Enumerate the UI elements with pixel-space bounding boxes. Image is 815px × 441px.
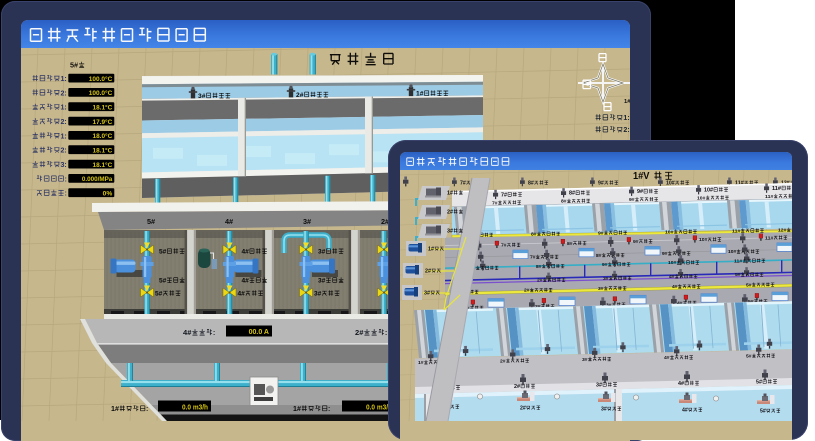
svg-text:5#: 5#	[760, 409, 766, 415]
svg-text:9#: 9#	[633, 239, 639, 245]
svg-text:7#: 7#	[492, 200, 498, 206]
svg-text:10#: 10#	[666, 181, 675, 187]
svg-text:3#: 3#	[601, 407, 607, 413]
svg-text:100.0°C: 100.0°C	[89, 75, 113, 83]
svg-text:3#: 3#	[596, 383, 602, 389]
svg-text:3#: 3#	[318, 278, 326, 285]
svg-text:2:: 2:	[61, 146, 67, 155]
svg-text:5#: 5#	[746, 354, 752, 360]
svg-text:4#: 4#	[678, 381, 684, 387]
svg-text:7#: 7#	[501, 192, 507, 198]
svg-text:100.0°C: 100.0°C	[89, 89, 113, 97]
svg-text:0%: 0%	[103, 190, 113, 197]
svg-text:9#: 9#	[662, 251, 668, 257]
svg-text:1#V: 1#V	[633, 171, 650, 182]
svg-text:2:: 2:	[623, 125, 629, 134]
svg-text:3#: 3#	[582, 357, 588, 363]
svg-text:9#: 9#	[598, 181, 604, 187]
svg-text:8#: 8#	[536, 264, 542, 270]
svg-text:1#: 1#	[447, 191, 453, 197]
svg-text:8#: 8#	[596, 253, 602, 259]
svg-text:10#: 10#	[697, 195, 706, 201]
svg-text:10#: 10#	[728, 249, 737, 255]
svg-text:3#: 3#	[424, 291, 430, 297]
svg-text:3#: 3#	[303, 218, 311, 226]
svg-text:0.000/MPa: 0.000/MPa	[82, 176, 113, 183]
svg-text:2#: 2#	[425, 269, 431, 275]
svg-text:9#: 9#	[637, 189, 643, 195]
svg-text:1#: 1#	[111, 406, 119, 413]
svg-text::: :	[213, 328, 215, 337]
svg-text:4#: 4#	[672, 284, 678, 290]
svg-text:5#: 5#	[155, 291, 163, 298]
svg-text:11#: 11#	[734, 258, 743, 264]
svg-text:1:: 1:	[61, 74, 67, 83]
svg-text:4#: 4#	[183, 328, 191, 337]
svg-text:7#: 7#	[501, 243, 507, 249]
svg-text:9#: 9#	[602, 262, 608, 268]
svg-text:1:: 1:	[623, 113, 629, 122]
svg-text:10#: 10#	[668, 260, 677, 266]
svg-text:0.0 m3/h: 0.0 m3/h	[182, 404, 208, 411]
svg-text:11#: 11#	[765, 235, 774, 241]
svg-text:7#: 7#	[530, 255, 536, 261]
svg-text:5#: 5#	[159, 249, 167, 256]
svg-text:1#: 1#	[418, 360, 424, 366]
svg-text:11#: 11#	[772, 186, 781, 192]
svg-text:8#: 8#	[561, 199, 567, 205]
svg-text:3#: 3#	[318, 249, 326, 256]
svg-text:5#: 5#	[147, 218, 155, 226]
svg-text:3#: 3#	[314, 291, 322, 298]
svg-text:5#: 5#	[756, 380, 762, 386]
svg-text:18.1°C: 18.1°C	[93, 161, 113, 169]
svg-text:8#: 8#	[569, 191, 575, 197]
svg-text:5#: 5#	[70, 62, 78, 70]
svg-text:2#: 2#	[447, 210, 453, 216]
svg-text:2#: 2#	[524, 288, 530, 294]
svg-text:4#: 4#	[238, 291, 246, 298]
svg-text:18.1°C: 18.1°C	[93, 146, 113, 154]
svg-text:1#: 1#	[624, 99, 630, 105]
svg-text:10#: 10#	[704, 188, 713, 194]
svg-text:3#: 3#	[603, 276, 609, 282]
svg-text:2#: 2#	[296, 92, 304, 99]
svg-text:4#: 4#	[225, 218, 233, 226]
svg-text:3#: 3#	[198, 93, 206, 100]
svg-text:17.9°C: 17.9°C	[93, 118, 113, 126]
svg-text:2#: 2#	[514, 384, 520, 390]
svg-text:3#: 3#	[447, 229, 453, 235]
svg-text::: :	[65, 174, 67, 183]
svg-text:2#: 2#	[500, 358, 506, 364]
svg-text:5#: 5#	[735, 272, 741, 278]
svg-text:4#: 4#	[242, 278, 250, 285]
svg-text:8#: 8#	[528, 181, 534, 187]
svg-text::: :	[385, 328, 387, 337]
svg-text:00.0 A: 00.0 A	[249, 328, 269, 336]
svg-text:3#: 3#	[598, 286, 604, 292]
svg-text:1:: 1:	[61, 131, 67, 140]
svg-text:11#: 11#	[765, 194, 774, 200]
svg-text:2:: 2:	[61, 117, 67, 126]
svg-text:7#: 7#	[460, 181, 466, 187]
svg-text:18.1°C: 18.1°C	[93, 103, 113, 111]
svg-text:2:: 2:	[61, 88, 67, 97]
svg-text:2#: 2#	[355, 328, 363, 337]
svg-text:1#: 1#	[293, 406, 301, 413]
svg-text:5#: 5#	[746, 282, 752, 288]
svg-text:4#: 4#	[669, 274, 675, 280]
svg-text:8#: 8#	[567, 241, 573, 247]
svg-text:4#: 4#	[664, 355, 670, 361]
svg-text:4#: 4#	[682, 408, 688, 414]
svg-text:4#: 4#	[242, 249, 250, 256]
svg-text:10#: 10#	[699, 237, 708, 243]
svg-text:5#: 5#	[159, 278, 167, 285]
svg-text:1#: 1#	[416, 91, 424, 98]
svg-text:2#: 2#	[520, 406, 526, 412]
svg-text:1:: 1:	[61, 103, 67, 112]
svg-text:3:: 3:	[61, 160, 67, 169]
svg-text:18.0°C: 18.0°C	[93, 132, 113, 140]
svg-text:9#: 9#	[629, 197, 635, 203]
svg-text::: :	[328, 406, 330, 413]
svg-text:2#: 2#	[537, 278, 543, 284]
svg-text::: :	[146, 406, 148, 413]
svg-text:1#: 1#	[428, 247, 434, 253]
svg-text::: :	[65, 189, 67, 198]
